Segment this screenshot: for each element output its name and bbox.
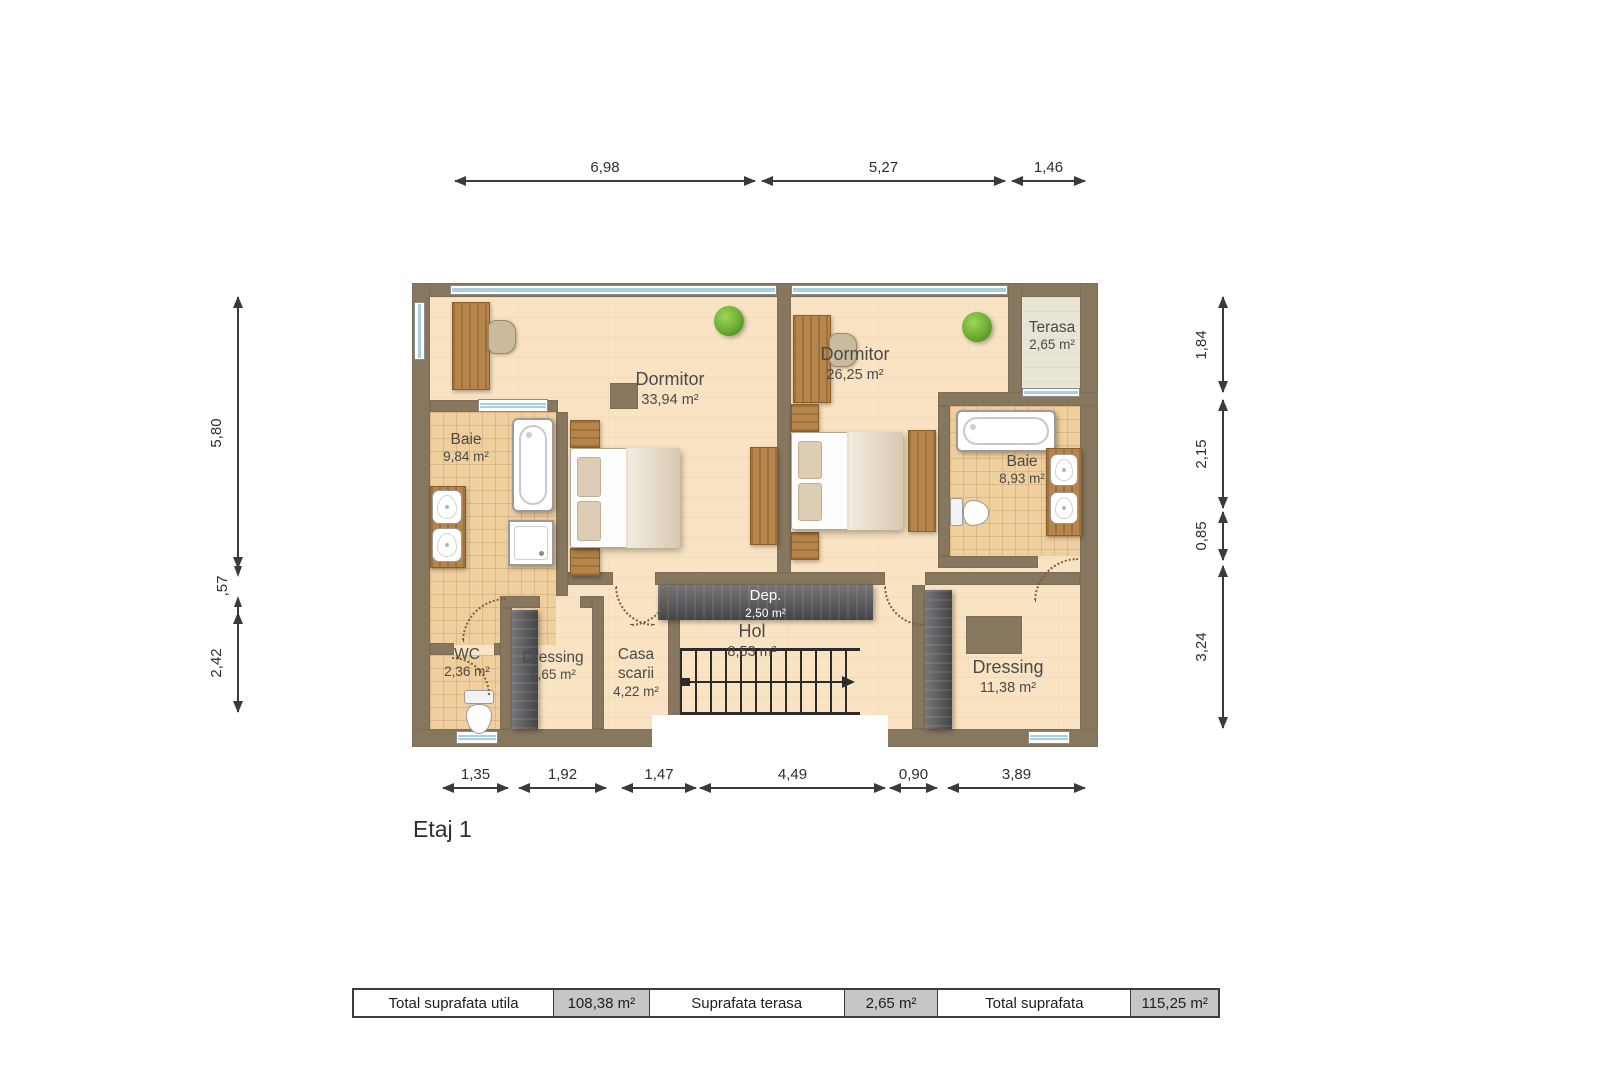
window-icon: [791, 285, 1008, 295]
stair-direction-line: [684, 681, 844, 683]
dim-right-1: 1,84: [1222, 297, 1224, 392]
dim-label: 2,42: [208, 648, 225, 677]
dim-label: 4,49: [775, 766, 810, 783]
blanket: [626, 448, 680, 548]
plant-icon: [962, 312, 992, 342]
arrow-left-icon: [518, 783, 530, 793]
summary-cell-label: Total suprafata: [937, 990, 1130, 1016]
dim-right-3: 0,85: [1222, 512, 1224, 560]
arrow-left-icon: [761, 176, 773, 186]
arrow-right-icon: [874, 783, 886, 793]
room-name: Baie: [424, 430, 508, 449]
bathtub-icon: [956, 410, 1056, 452]
arrow-right-icon: [926, 783, 938, 793]
room-label-dressing-2: Dressing 11,38 m²: [946, 656, 1070, 697]
dim-left-3: 2,42: [237, 613, 239, 712]
room-area: 2,36 m²: [430, 664, 504, 681]
room-label-dressing-1: Dressing 4,65 m²: [509, 648, 597, 684]
bath1-ledge-icon: [478, 399, 548, 412]
dim-label: 6,98: [587, 159, 622, 176]
stair-landing: [652, 715, 888, 747]
arrow-right-icon: [994, 176, 1006, 186]
arrow-right-icon: [1074, 176, 1086, 186]
arrow-up-icon: [233, 612, 243, 624]
wall-bath1-right: [556, 412, 568, 596]
wall-bath2-bottom: [938, 556, 1038, 568]
dim-label: 0,85: [1193, 521, 1210, 550]
dim-label: 1,46: [1031, 159, 1066, 176]
bed-icon: [570, 448, 680, 548]
arrow-down-icon: [1218, 381, 1228, 393]
wall-bedroom-divider: [777, 283, 791, 585]
wall-bath2-left: [938, 406, 950, 556]
pillow: [577, 501, 601, 541]
arrow-left-icon: [947, 783, 959, 793]
dim-bottom-4: 4,49: [700, 787, 885, 789]
dim-label: 1,84: [1193, 330, 1210, 359]
dim-label: 5,27: [866, 159, 901, 176]
dim-label: 1,47: [641, 766, 676, 783]
dim-right-4: 3,24: [1222, 566, 1224, 728]
dim-label: 3,89: [999, 766, 1034, 783]
room-name: Baie: [970, 452, 1074, 471]
summary-cell-label: Total suprafata utila: [354, 990, 553, 1016]
toilet-icon: [950, 498, 963, 526]
arrow-left-icon: [621, 783, 633, 793]
dim-label: 2,15: [1193, 439, 1210, 468]
sink-icon: [432, 490, 462, 524]
dim-label: 1,35: [458, 766, 493, 783]
summary-cell-label: Suprafata terasa: [649, 990, 844, 1016]
pillow: [798, 441, 822, 479]
wall-hall-band-2: [655, 572, 885, 585]
room-name: Terasa: [1012, 318, 1092, 337]
room-name: Dressing: [946, 656, 1070, 679]
dim-label: 5,80: [208, 418, 225, 447]
arrow-left-icon: [454, 176, 466, 186]
arrow-left-icon: [1011, 176, 1023, 186]
room-label-dormitor-1: Dormitor 33,94 m²: [610, 368, 730, 409]
room-label-wc: WC 2,36 m²: [430, 645, 504, 681]
pillow: [798, 483, 822, 521]
wall-dressing1-top-a: [500, 596, 540, 608]
room-label-dep: Dep. 2,50 m²: [658, 587, 873, 621]
dim-bottom-6: 3,89: [948, 787, 1085, 789]
window-icon: [414, 302, 425, 360]
dep-closet: Dep. 2,50 m²: [658, 585, 873, 620]
nightstand-icon: [791, 532, 819, 560]
room-label-baie-1: Baie 9,84 m²: [424, 430, 508, 466]
sink-icon: [1050, 492, 1078, 524]
arrow-left-icon: [442, 783, 454, 793]
bathtub-icon: [512, 418, 554, 512]
dim-label: ,57: [214, 576, 231, 597]
chair-icon: [488, 320, 516, 354]
shower-icon: [508, 520, 554, 566]
room-name: Dep.: [658, 587, 873, 606]
floor-plan-canvas: 6,98 5,27 1,46 5,80 ,57 2,42 1,84 2,15 0…: [0, 0, 1619, 1080]
room-label-terasa: Terasa 2,65 m²: [1012, 318, 1092, 354]
room-label-dormitor-2: Dormitor 26,25 m²: [795, 343, 915, 384]
arrow-down-icon: [1218, 717, 1228, 729]
room-area: 2,50 m²: [658, 606, 873, 621]
room-label-baie-2: Baie 8,93 m²: [970, 452, 1074, 488]
arrow-down-icon: [233, 701, 243, 713]
dim-label: 3,24: [1193, 632, 1210, 661]
dim-label: 0,90: [896, 766, 931, 783]
room-name: Hol: [690, 620, 814, 643]
dim-top-3: 1,46: [1012, 180, 1085, 182]
dim-label: 1,92: [545, 766, 580, 783]
nightstand-icon: [791, 404, 819, 432]
arrow-right-icon: [497, 783, 509, 793]
room-area: 33,94 m²: [610, 391, 730, 409]
room-name: Casa scarii: [602, 645, 670, 684]
room-label-hol: Hol 8,53 m²: [690, 620, 814, 661]
arrow-up-icon: [1218, 511, 1228, 523]
arrow-up-icon: [1218, 296, 1228, 308]
wardrobe-icon: [908, 430, 936, 532]
summary-cell-value: 2,65 m²: [844, 990, 938, 1016]
arrow-right-icon: [1074, 783, 1086, 793]
room-area: 8,53 m²: [690, 643, 814, 661]
room-area: 4,22 m²: [602, 684, 670, 701]
window-icon: [450, 285, 777, 295]
dim-bottom-1: 1,35: [443, 787, 508, 789]
room-name: Dormitor: [610, 368, 730, 391]
arrow-down-icon: [234, 566, 242, 577]
arrow-right-icon: [744, 176, 756, 186]
sink-icon: [432, 528, 462, 562]
arrow-down-icon: [1218, 549, 1228, 561]
room-area: 11,38 m²: [946, 679, 1070, 697]
blanket: [847, 432, 903, 530]
room-area: 26,25 m²: [795, 366, 915, 384]
room-area: 4,65 m²: [509, 667, 597, 684]
terrace-railing-icon: [1022, 388, 1080, 397]
plant-icon: [714, 306, 744, 336]
room-area: 2,65 m²: [1012, 337, 1092, 354]
window-icon: [1028, 731, 1070, 744]
arrow-right-icon: [685, 783, 697, 793]
summary-table: Total suprafata utila 108,38 m² Suprafat…: [352, 988, 1220, 1018]
dim-bottom-3: 1,47: [622, 787, 696, 789]
arrow-down-icon: [1218, 497, 1228, 509]
dim-left-2: ,57: [237, 556, 239, 616]
arrow-up-icon: [234, 596, 242, 607]
room-area: 9,84 m²: [424, 449, 508, 466]
summary-cell-value: 108,38 m²: [553, 990, 649, 1016]
arrow-left-icon: [699, 783, 711, 793]
bed-icon: [791, 432, 903, 530]
arrow-left-icon: [889, 783, 901, 793]
arrow-right-icon: [595, 783, 607, 793]
summary-cell-value: 115,25 m²: [1130, 990, 1218, 1016]
pillow: [577, 457, 601, 497]
desk-icon: [452, 302, 490, 390]
room-name: Dormitor: [795, 343, 915, 366]
nightstand-icon: [570, 420, 600, 448]
dressing2-box: [966, 616, 1022, 654]
arrow-right-icon: [842, 676, 855, 688]
dim-left-1: 5,80: [237, 297, 239, 568]
arrow-up-icon: [1218, 399, 1228, 411]
dim-bottom-5: 0,90: [890, 787, 937, 789]
dim-right-2: 2,15: [1222, 400, 1224, 508]
nightstand-icon: [570, 548, 600, 576]
floor-title: Etaj 1: [413, 816, 472, 843]
dim-top-1: 6,98: [455, 180, 755, 182]
room-area: 8,93 m²: [970, 471, 1074, 488]
room-label-casa-scarii: Casa scarii 4,22 m²: [602, 645, 670, 701]
room-name: WC: [430, 645, 504, 664]
dresser-icon: [750, 447, 778, 545]
arrow-up-icon: [233, 296, 243, 308]
room-name: Dressing: [509, 648, 597, 667]
dim-bottom-2: 1,92: [519, 787, 606, 789]
arrow-up-icon: [1218, 565, 1228, 577]
dim-top-2: 5,27: [762, 180, 1005, 182]
wall-dressing1-top-b: [580, 596, 592, 608]
